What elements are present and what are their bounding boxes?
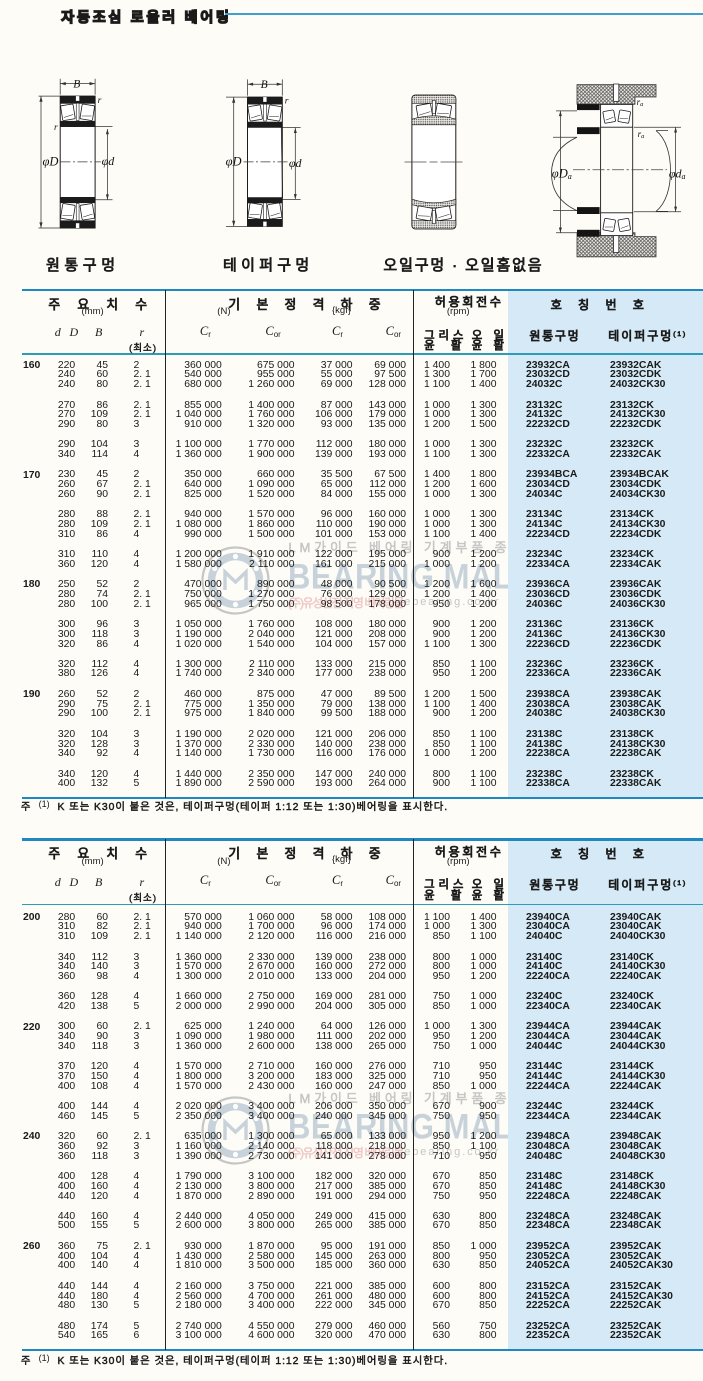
svg-text:r: r (54, 123, 58, 133)
svg-text:φD: φD (226, 155, 242, 169)
svg-text:φda: φda (669, 167, 686, 182)
svg-text:r: r (98, 96, 102, 106)
svg-text:φd: φd (102, 154, 116, 168)
svg-text:r: r (285, 96, 289, 106)
svg-text:φD: φD (43, 155, 59, 169)
svg-text:ra: ra (637, 97, 644, 108)
svg-text:φd: φd (289, 156, 303, 170)
svg-text:B: B (73, 79, 80, 91)
svg-text:ra: ra (638, 129, 645, 140)
svg-text:φDa: φDa (552, 167, 572, 182)
svg-text:B: B (261, 79, 268, 91)
